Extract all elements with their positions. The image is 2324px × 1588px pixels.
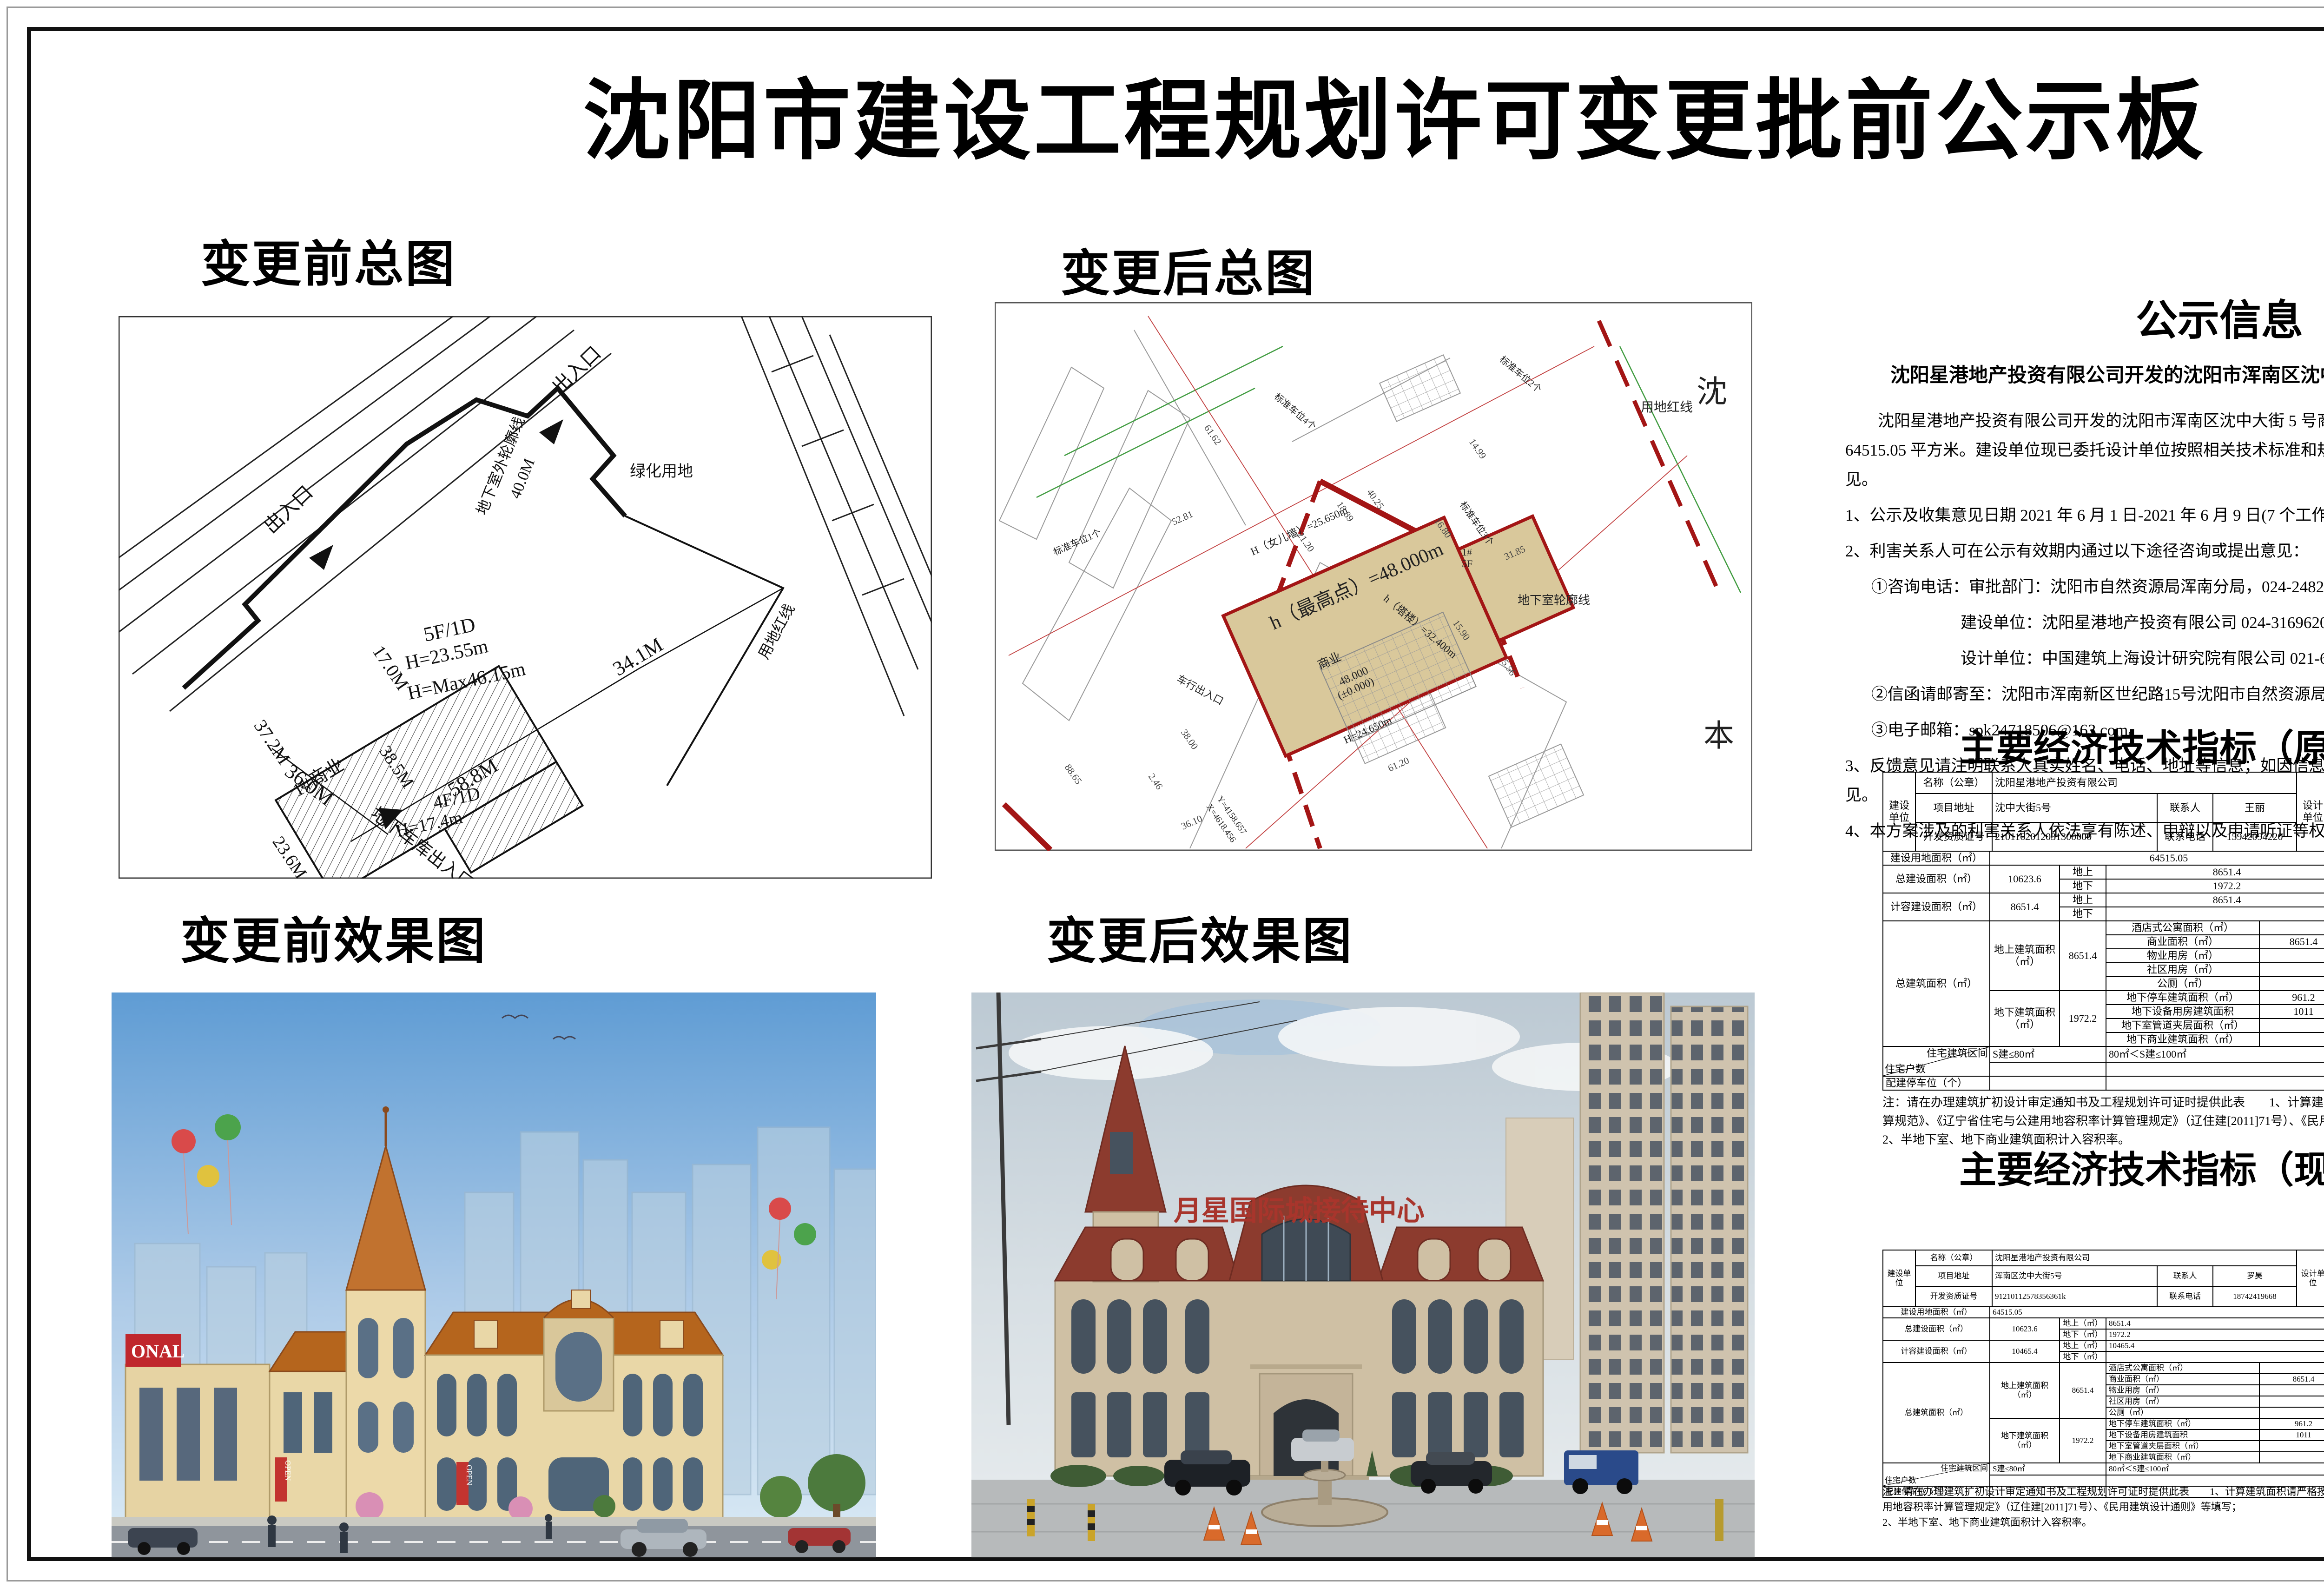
- banner-text: OPEN: [284, 1460, 292, 1481]
- label-basement-line: 地下室轮廓线: [1518, 594, 1590, 607]
- notice-sub-3: 设计单位：中国建筑上海设计研究院有限公司 021-62858180: [1845, 644, 2324, 673]
- sign-partial-text: ONAL: [131, 1341, 185, 1362]
- cell: [2106, 1062, 2324, 1076]
- cell: [2106, 1076, 2324, 1090]
- cell: 浑南区沈中大街5号: [1992, 1266, 2157, 1286]
- sidewalk: [112, 1517, 876, 1526]
- cell: 总建筑面积（㎡）: [1883, 921, 1990, 1046]
- cell: [2259, 1032, 2324, 1046]
- cell: S建≤80㎡: [1990, 1046, 2106, 1062]
- cell: 地下商业建筑面积（㎡）: [2106, 1452, 2259, 1463]
- notice-item-2: 2、利害关系人可在公示有效期内通过以下途径咨询或提出意见：: [1845, 536, 2324, 566]
- cell: 地下室管道夹层面积（㎡）: [2106, 1019, 2259, 1032]
- cell: 18742419668: [2213, 1286, 2297, 1307]
- cell: 1972.2: [2060, 1418, 2106, 1463]
- cell: 8651.4: [2106, 1318, 2324, 1329]
- cell: 961.2: [2259, 991, 2324, 1005]
- cell: 名称（公章）: [1915, 1250, 1992, 1266]
- cell: 10623.6: [1990, 1318, 2060, 1340]
- cell: 设计单位: [2297, 1250, 2324, 1307]
- cell: 8651.4: [2060, 1363, 2106, 1418]
- cell: 地下: [2060, 879, 2106, 893]
- cell: 名称（公章）: [1915, 772, 1992, 794]
- table2-id: 建设单位 名称（公章） 沈阳星港地产投资有限公司 设计单位 名称（公章） 中国建…: [1882, 1250, 2324, 1307]
- cell: 91210112578356361k: [1992, 1286, 2157, 1307]
- cell: 地下商业建筑面积（㎡）: [2106, 1032, 2259, 1046]
- cell: 商业面积（㎡）: [2106, 935, 2259, 949]
- cell: 公厕（㎡）: [2106, 977, 2259, 991]
- cell: 设计单位: [2297, 772, 2324, 851]
- cell: 开发资质证号: [1915, 822, 1992, 851]
- cell: [2259, 1441, 2324, 1452]
- site-plan-before: 出入口 出入口 绿化用地 17.0M 37.2M 1#商业 5F/1D H=23…: [119, 316, 932, 879]
- notice-board: 沈阳市建设工程规划许可变更批前公示板 变更前总图 变更后总图 变更前效果图 变更…: [0, 0, 2324, 1588]
- diag-row-label: 住宅户数: [1885, 1063, 1926, 1075]
- cell: 地上: [2060, 865, 2106, 879]
- label-shen: 沈: [1697, 375, 1727, 409]
- heading-plan-after: 变更后总图: [1061, 233, 1316, 305]
- cell: [2259, 1452, 2324, 1463]
- label-f5: 5F: [1462, 558, 1472, 569]
- cell: 8651.4: [2060, 921, 2106, 991]
- cell: [2259, 963, 2324, 977]
- cell: 10465.4: [1990, 1340, 2060, 1363]
- table2-note-2: 2、半地下室、地下商业建筑面积计入容积率。: [1882, 1515, 2324, 1530]
- cell: 地下建筑面积（㎡）: [1990, 1418, 2060, 1463]
- cell: [2106, 1351, 2324, 1363]
- cell: 联系人: [2157, 794, 2213, 822]
- cell: 王丽: [2213, 794, 2297, 822]
- cell: 地下设备用房建筑面积: [2106, 1005, 2259, 1019]
- table2-notes: 注：请在办理建筑扩初设计审定通知书及工程规划许可证时提供此表 1、计算建筑面积请…: [1882, 1484, 2324, 1530]
- notice-sub-2: 建设单位：沈阳星港地产投资有限公司 024-31696200；: [1845, 608, 2324, 637]
- cell: [2259, 1363, 2324, 1374]
- cell: 地下（㎡）: [2060, 1351, 2106, 1363]
- cell: 1972.2: [2106, 879, 2324, 893]
- cell: [2259, 949, 2324, 963]
- cell: 计容建设面积（㎡）: [1883, 1340, 1990, 1363]
- building-sign: 月星国际城接待中心: [1174, 1196, 1425, 1226]
- page-title: 沈阳市建设工程规划许可变更批前公示板: [0, 50, 2324, 177]
- rendering-before: ONAL: [112, 992, 876, 1557]
- cell: 1011: [2259, 1005, 2324, 1019]
- cell: 计容建设面积（㎡）: [1883, 893, 1990, 921]
- table-original: 建设单位 名称（公章） 沈阳星港地产投资有限公司 设计单位 名称（公章） 中国建…: [1882, 772, 2324, 1091]
- cell: 地下停车建筑面积（㎡）: [2106, 1418, 2259, 1429]
- cell: 总建设面积（㎡）: [1883, 865, 1990, 893]
- cell: 沈阳星港地产投资有限公司: [1992, 772, 2297, 794]
- cell: [2259, 921, 2324, 935]
- cell: 沈中大街5号: [1992, 794, 2157, 822]
- table1-fill-date: 填表日期：2014年01月09日: [1882, 756, 2324, 773]
- cell: 8651.4: [2106, 893, 2324, 907]
- heading-render-after: 变更后效果图: [1047, 901, 1353, 973]
- cell: 8651.4: [1990, 893, 2060, 921]
- cell: 地下室管道夹层面积（㎡）: [2106, 1441, 2259, 1452]
- cell: 地下: [2060, 907, 2106, 921]
- cell: [2259, 1019, 2324, 1032]
- cell: 2101162012031300000: [1992, 822, 2157, 851]
- cell: [2259, 1396, 2324, 1407]
- cell: 1972.2: [2106, 1329, 2324, 1340]
- cell: 地下设备用房建筑面积: [2106, 1429, 2259, 1441]
- cell: 地下停车建筑面积（㎡）: [2106, 991, 2259, 1005]
- cell: 地下（㎡）: [2060, 1329, 2106, 1340]
- table1-indicators: 建设用地面积（㎡） 64515.05 商业面积（㎡） 8651.4 商业比（%）…: [1882, 851, 2324, 1091]
- heading-plan-before: 变更前总图: [201, 224, 456, 296]
- cell: 建设单位: [1883, 1250, 1915, 1307]
- cell: [2259, 1407, 2324, 1418]
- cell: 物业用房（㎡）: [2106, 949, 2259, 963]
- notice-paragraph: 沈阳星港地产投资有限公司开发的沈阳市浑南区沈中大街 5 号商业一期-1 项目，规…: [1845, 406, 2324, 494]
- notice-sub-4: ②信函请邮寄至：沈阳市浑南新区世纪路15号沈阳市自然资源局浑南分局（以邮戳日期为…: [1845, 680, 2324, 709]
- label-green-space: 绿化用地: [630, 463, 693, 480]
- cell: 8651.4: [2259, 1374, 2324, 1385]
- cell: 建设单位: [1883, 772, 1915, 851]
- cell: 8651.4: [2259, 935, 2324, 949]
- banner-text: OPEN: [465, 1465, 474, 1485]
- cell: 8651.4: [2106, 865, 2324, 879]
- cell: 地下建筑面积（㎡）: [1990, 991, 2060, 1046]
- cell: 1972.2: [2060, 991, 2106, 1046]
- table-current: 建设单位 名称（公章） 沈阳星港地产投资有限公司 设计单位 名称（公章） 中国建…: [1882, 1250, 2324, 1498]
- cell: [2106, 907, 2324, 921]
- diag-col-label: 住宅建筑区间: [1941, 1464, 1988, 1473]
- cell: 开发资质证号: [1915, 1286, 1992, 1307]
- cell: 罗昊: [2213, 1266, 2297, 1286]
- table2-title: 主要经济技术指标（现指标）: [1845, 1140, 2324, 1194]
- cell: 联系人: [2157, 1266, 2213, 1286]
- cell: 64515.05: [1990, 851, 2324, 865]
- cell: 总建筑面积（㎡）: [1883, 1363, 1990, 1463]
- cell: 地上建筑面积（㎡）: [1990, 921, 2060, 991]
- table1-id: 建设单位 名称（公章） 沈阳星港地产投资有限公司 设计单位 名称（公章） 中国建…: [1882, 772, 2324, 852]
- cell: 地上（㎡）: [2060, 1340, 2106, 1351]
- cell: 1011: [2259, 1429, 2324, 1441]
- cell: 10465.4: [2106, 1340, 2324, 1351]
- table2-fill-date: 填表日期： 2021 年 04 月 23 日: [1882, 1234, 2324, 1250]
- rendering-after: 月星国际城接待中心: [971, 992, 1755, 1557]
- diagonal-header: 住宅建筑区间 住宅户数: [1883, 1046, 1990, 1076]
- cell: 建设用地面积（㎡）: [1883, 1307, 1990, 1318]
- table2-note-1: 注：请在办理建筑扩初设计审定通知书及工程规划许可证时提供此表 1、计算建筑面积请…: [1882, 1484, 2324, 1515]
- notice-subtitle: 沈阳星港地产投资有限公司开发的沈阳市浑南区沈中大街5号商业一期-1项目规划变更批…: [1845, 363, 2324, 389]
- cell: [1990, 1062, 2106, 1076]
- cell: 物业用房（㎡）: [2106, 1385, 2259, 1396]
- cell: 沈阳星港地产投资有限公司: [1992, 1250, 2297, 1266]
- notice-item-1: 1、公示及收集意见日期 2021 年 6 月 1 日-2021 年 6 月 9 …: [1845, 501, 2324, 530]
- cell: 总建设面积（㎡）: [1883, 1318, 1990, 1340]
- table1-note-1: 注：请在办理建筑扩初设计审定通知书及工程规划许可证时提供此表 1、计算建筑面积请…: [1882, 1093, 2324, 1131]
- cell: [2259, 977, 2324, 991]
- cell: [1990, 1076, 2106, 1090]
- cell: 961.2: [2259, 1418, 2324, 1429]
- diagonal-header: 住宅建筑区间 住宅户数: [1883, 1463, 1990, 1486]
- cell: 10623.6: [1990, 865, 2060, 893]
- diag-col-label: 住宅建筑区间: [1927, 1047, 1988, 1059]
- cell: 公厕（㎡）: [2106, 1407, 2259, 1418]
- cell: 项目地址: [1915, 794, 1992, 822]
- table2-indicators: 建设用地面积（㎡） 64515.05 商业面积（㎡） 8651.4 商业比（%）…: [1882, 1306, 2324, 1498]
- cell: 80㎡＜S建≤100㎡: [2106, 1046, 2324, 1062]
- cell: [2259, 1385, 2324, 1396]
- cell: 项目地址: [1915, 1266, 1992, 1286]
- notice-sub-1: ①咨询电话：审批部门：沈阳市自然资源局浑南分局，024-24820955；: [1845, 572, 2324, 602]
- cell: 社区用房（㎡）: [2106, 1396, 2259, 1407]
- cell: 联系电话: [2157, 822, 2213, 851]
- cell: 配建停车位（个）: [1883, 1076, 1990, 1090]
- cell: 建设用地面积（㎡）: [1883, 851, 1990, 865]
- cell: 64515.05: [1990, 1307, 2324, 1318]
- label-ben: 本: [1703, 719, 1734, 753]
- label-redline-after: 用地红线: [1641, 400, 1693, 415]
- cell: 地上: [2060, 893, 2106, 907]
- cell: S建≤80㎡: [1990, 1463, 2106, 1475]
- cell: 社区用房（㎡）: [2106, 963, 2259, 977]
- cell: 地上（㎡）: [2060, 1318, 2106, 1329]
- cell: 商业面积（㎡）: [2106, 1374, 2259, 1385]
- cell: 80㎡＜S建≤100㎡: [2106, 1463, 2324, 1475]
- notice-heading: 公示信息: [1845, 296, 2324, 347]
- label-b1: 1#: [1462, 546, 1472, 558]
- cell: 酒店式公寓面积（㎡）: [2106, 1363, 2259, 1374]
- cell: 酒店式公寓面积（㎡）: [2106, 921, 2259, 935]
- heading-render-before: 变更前效果图: [180, 901, 487, 973]
- cell: 地上建筑面积（㎡）: [1990, 1363, 2060, 1418]
- site-plan-after: 沈 本 h（最高点）=48.000m 商业 48.000 (±0.000) H（…: [995, 302, 1752, 851]
- cell: 联系电话: [2157, 1286, 2213, 1307]
- cell: 15942094220: [2213, 822, 2297, 851]
